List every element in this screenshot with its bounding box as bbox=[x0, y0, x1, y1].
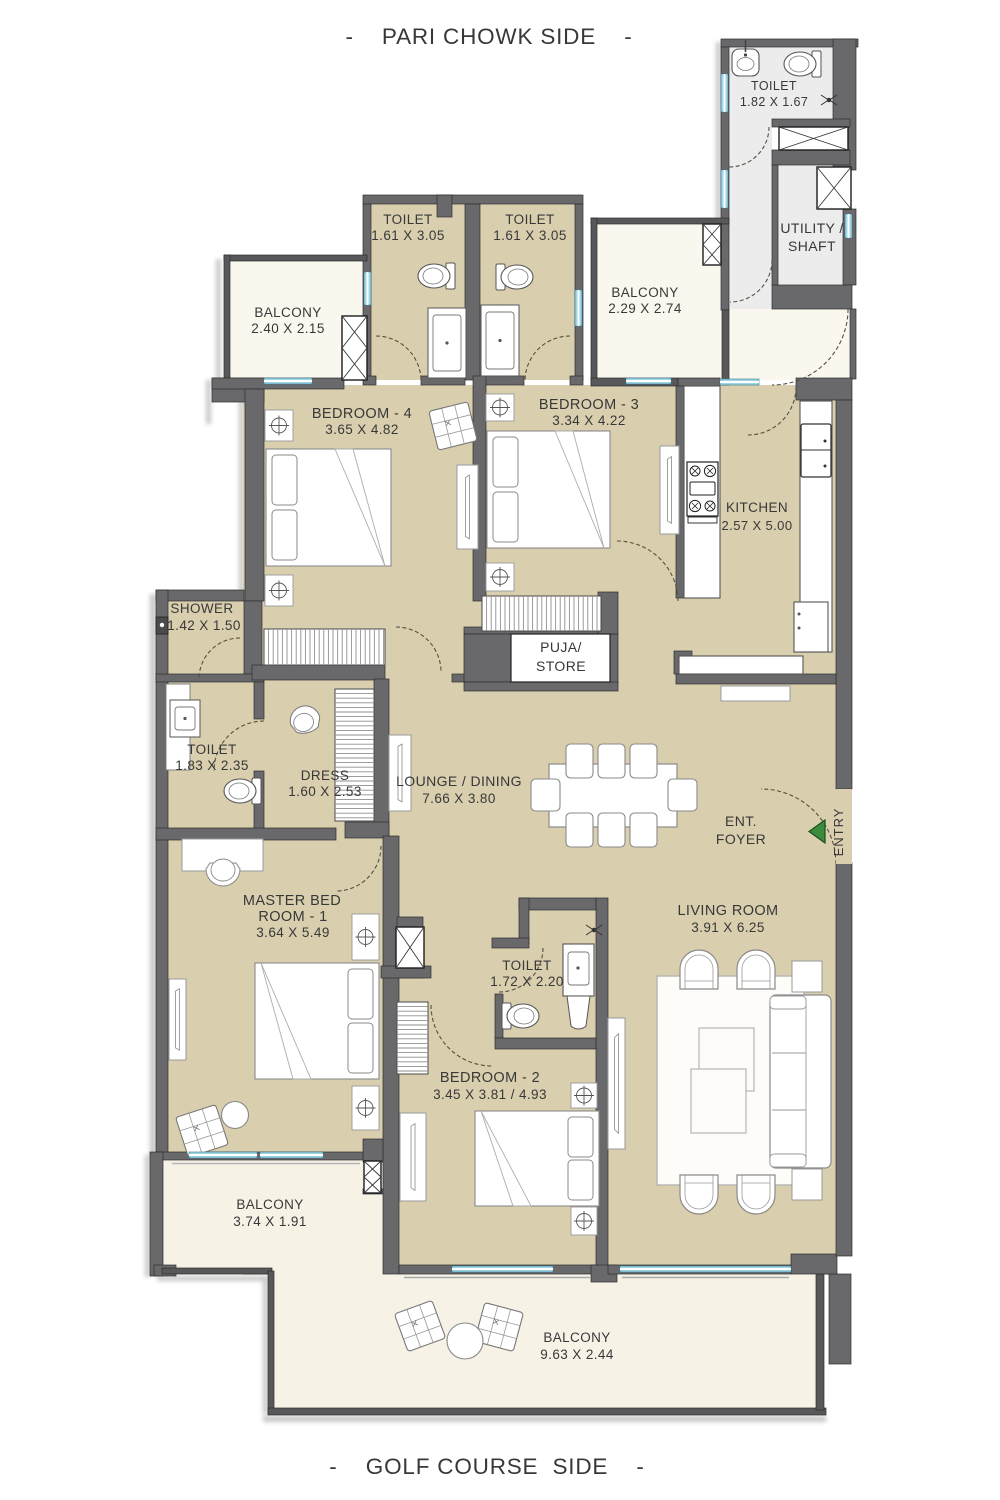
svg-text:STORE: STORE bbox=[536, 658, 586, 674]
svg-text:3.91 X 6.25: 3.91 X 6.25 bbox=[691, 920, 764, 935]
svg-text:2.57 X 5.00: 2.57 X 5.00 bbox=[722, 518, 793, 533]
svg-text:BALCONY: BALCONY bbox=[543, 1330, 610, 1345]
svg-text:FOYER: FOYER bbox=[716, 831, 766, 847]
svg-text:TOILET: TOILET bbox=[751, 79, 797, 93]
svg-text:1.83 X 2.35: 1.83 X 2.35 bbox=[175, 758, 248, 773]
svg-text:ROOM - 1: ROOM - 1 bbox=[258, 909, 327, 925]
svg-text:1.82 X 1.67: 1.82 X 1.67 bbox=[740, 95, 808, 109]
svg-text:MASTER BED: MASTER BED bbox=[243, 893, 341, 909]
svg-text:2.29 X 2.74: 2.29 X 2.74 bbox=[608, 301, 682, 316]
svg-text:7.66 X 3.80: 7.66 X 3.80 bbox=[422, 791, 495, 806]
svg-text:ENTRY: ENTRY bbox=[831, 808, 846, 857]
svg-text:BALCONY: BALCONY bbox=[254, 305, 321, 320]
svg-text:TOILET: TOILET bbox=[187, 742, 236, 757]
svg-text:3.65 X 4.82: 3.65 X 4.82 bbox=[325, 422, 398, 437]
svg-text:SHOWER: SHOWER bbox=[170, 601, 233, 616]
svg-text:1.42 X 1.50: 1.42 X 1.50 bbox=[167, 618, 240, 633]
svg-text:3.64 X 5.49: 3.64 X 5.49 bbox=[256, 925, 329, 940]
svg-text:SHAFT: SHAFT bbox=[788, 238, 836, 254]
svg-text:9.63 X 2.44: 9.63 X 2.44 bbox=[540, 1347, 614, 1362]
svg-text:BEDROOM - 3: BEDROOM - 3 bbox=[539, 397, 639, 413]
svg-text:TOILET: TOILET bbox=[505, 212, 554, 227]
svg-text:LOUNGE / DINING: LOUNGE / DINING bbox=[396, 773, 522, 789]
svg-text:BALCONY: BALCONY bbox=[236, 1197, 303, 1212]
svg-text:3.45 X 3.81 / 4.93: 3.45 X 3.81 / 4.93 bbox=[433, 1087, 547, 1102]
svg-text:BEDROOM - 4: BEDROOM - 4 bbox=[312, 406, 412, 422]
svg-text:PUJA/: PUJA/ bbox=[540, 639, 582, 655]
svg-text:1.61 X 3.05: 1.61 X 3.05 bbox=[493, 228, 566, 243]
svg-text:3.34 X 4.22: 3.34 X 4.22 bbox=[552, 413, 625, 428]
svg-text:BEDROOM - 2: BEDROOM - 2 bbox=[440, 1070, 540, 1086]
svg-text:TOILET: TOILET bbox=[383, 212, 432, 227]
svg-text:KITCHEN: KITCHEN bbox=[726, 500, 788, 515]
svg-text:1.72 X 2.20: 1.72 X 2.20 bbox=[490, 974, 563, 989]
svg-text:1.61 X 3.05: 1.61 X 3.05 bbox=[371, 228, 444, 243]
svg-text:- PARI CHOWK SIDE -: - PARI CHOWK SIDE - bbox=[345, 24, 632, 49]
svg-text:1.60 X 2.53: 1.60 X 2.53 bbox=[288, 784, 361, 799]
svg-text:BALCONY: BALCONY bbox=[611, 285, 678, 300]
svg-text:TOILET: TOILET bbox=[502, 958, 551, 973]
svg-text:ENT.: ENT. bbox=[725, 813, 757, 829]
svg-text:2.40 X 2.15: 2.40 X 2.15 bbox=[251, 321, 324, 336]
svg-text:DRESS: DRESS bbox=[301, 768, 350, 783]
svg-text:LIVING ROOM: LIVING ROOM bbox=[677, 903, 778, 919]
svg-text:3.74 X 1.91: 3.74 X 1.91 bbox=[233, 1214, 306, 1229]
svg-text:UTILITY /: UTILITY / bbox=[780, 220, 843, 236]
svg-text:- GOLF COURSE SIDE -: - GOLF COURSE SIDE - bbox=[329, 1454, 644, 1479]
